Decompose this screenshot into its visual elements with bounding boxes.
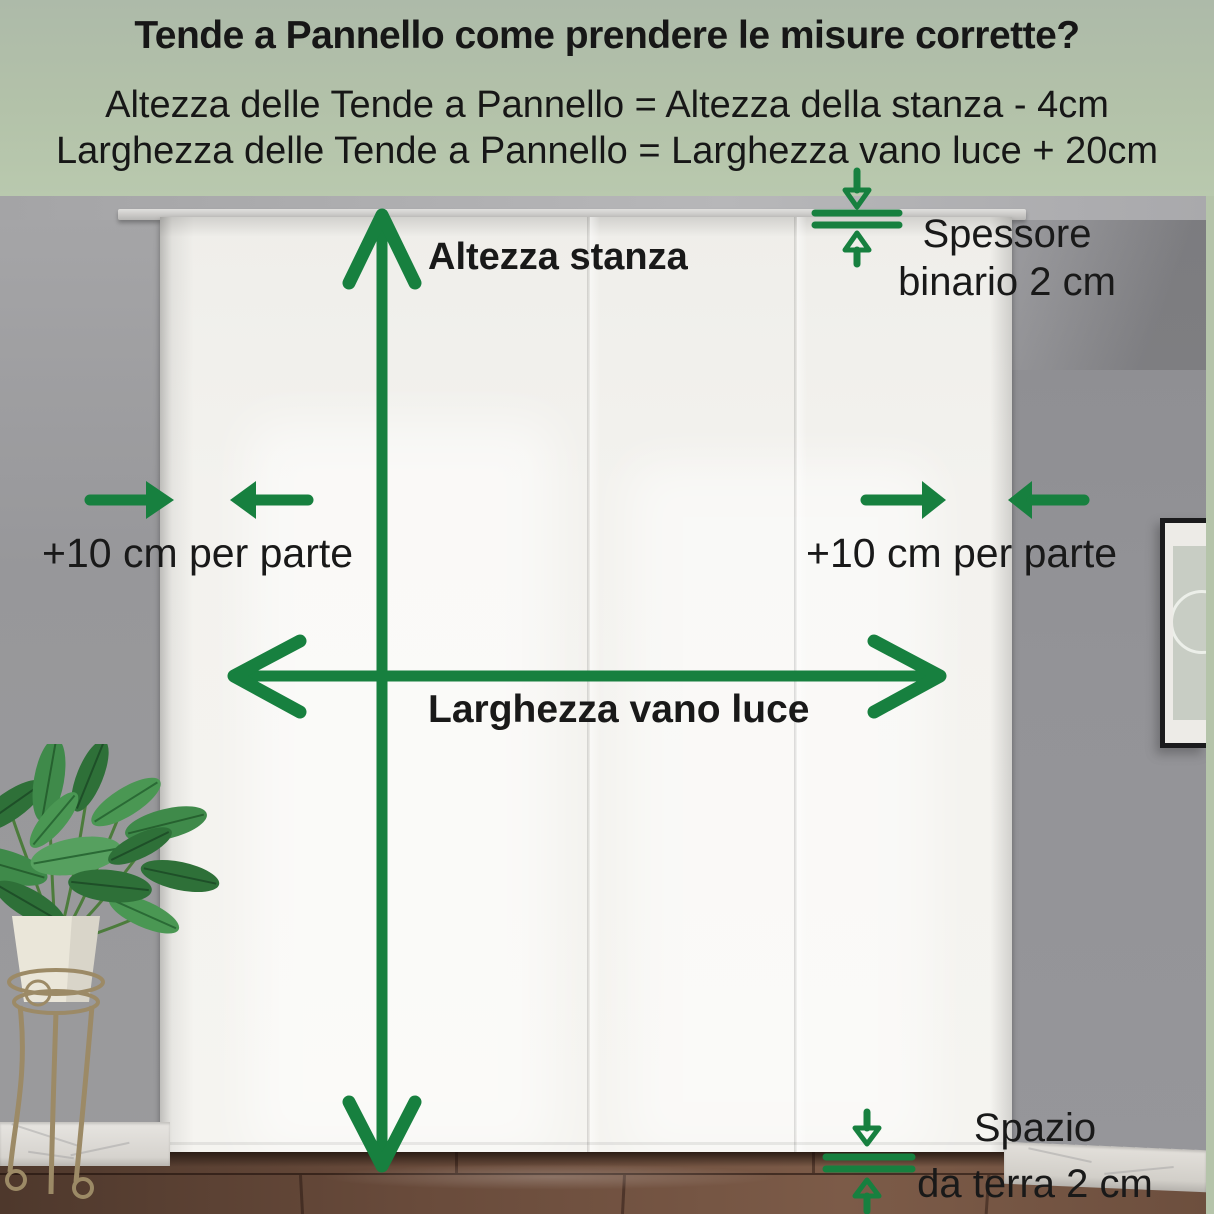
plant-leaves [0,744,222,941]
right-edge-strip [1206,196,1214,1214]
picture-frame [1160,518,1206,748]
left-margin-label: +10 cm per parte [42,530,353,577]
floor-reflection [320,1164,780,1190]
picture-artwork [1173,546,1206,720]
floor-gap-label: Spazio da terra 2 cm [904,1100,1166,1212]
plant-stand [7,970,103,1197]
panel-curtain [160,217,1012,1153]
height-formula-text: Altezza delle Tende a Pannello = Altezza… [0,84,1214,127]
rail-thickness-label: Spessore binario 2 cm [872,210,1142,306]
artwork-circle-motif [1173,590,1206,654]
rail-thickness-line2: binario 2 cm [872,258,1142,306]
right-margin-label: +10 cm per parte [806,530,1117,577]
floor-gap-line2: da terra 2 cm [904,1156,1166,1212]
panel-seam-1-highlight [590,217,600,1153]
curtain-hem [160,1142,1012,1145]
width-formula-text: Larghezza delle Tende a Pannello = Largh… [0,130,1214,173]
rail-thickness-line1: Spessore [872,210,1142,258]
floor-joint [812,1152,815,1173]
infographic-canvas: Tende a Pannello come prendere le misure… [0,0,1214,1214]
panel-seam-2-highlight [797,217,807,1153]
header-band: Tende a Pannello come prendere le misure… [0,0,1214,196]
page-title: Tende a Pannello come prendere le misure… [0,14,1214,58]
potted-plant [0,744,222,1214]
room-height-label: Altezza stanza [428,236,688,279]
opening-width-label: Larghezza vano luce [428,688,809,732]
floor-gap-line1: Spazio [904,1100,1166,1156]
